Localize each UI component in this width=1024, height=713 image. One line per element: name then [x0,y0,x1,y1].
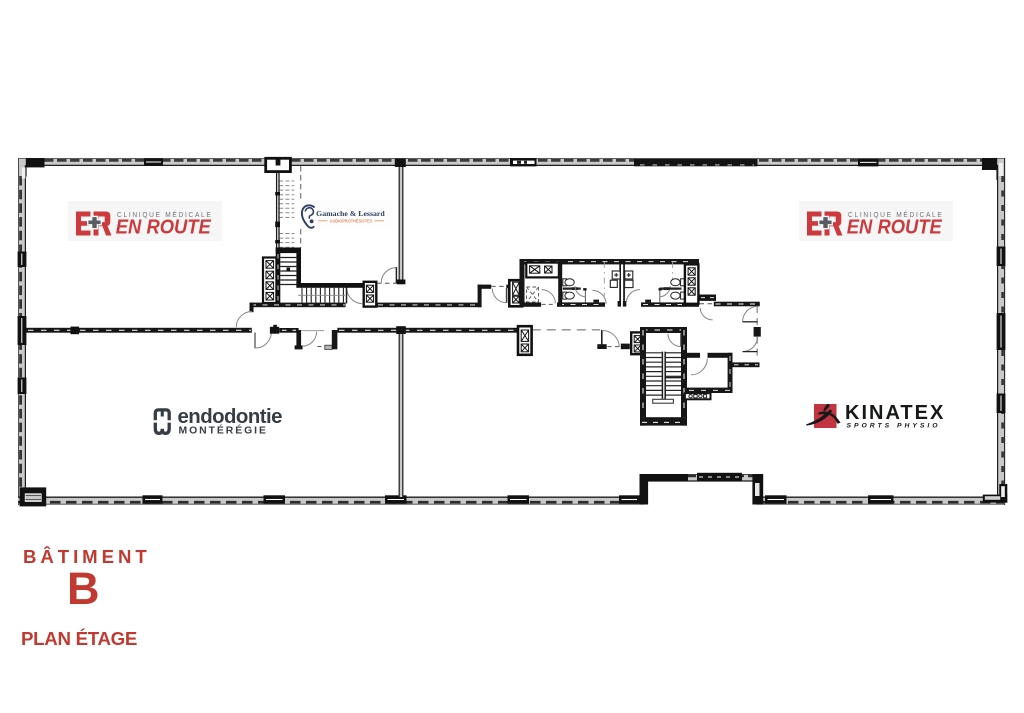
svg-text:EN ROUTE: EN ROUTE [116,216,212,238]
svg-text:KINATEX: KINATEX [845,402,945,424]
svg-text:EN ROUTE: EN ROUTE [847,216,943,238]
svg-text:SPORTS PHYSIO: SPORTS PHYSIO [847,423,941,430]
svg-text:Gamache & Lessard: Gamache & Lessard [316,209,385,218]
svg-text:AUDIOPROTHÉSISTES: AUDIOPROTHÉSISTES [330,219,373,224]
svg-text:MONTÉRÉGIE: MONTÉRÉGIE [179,424,268,436]
